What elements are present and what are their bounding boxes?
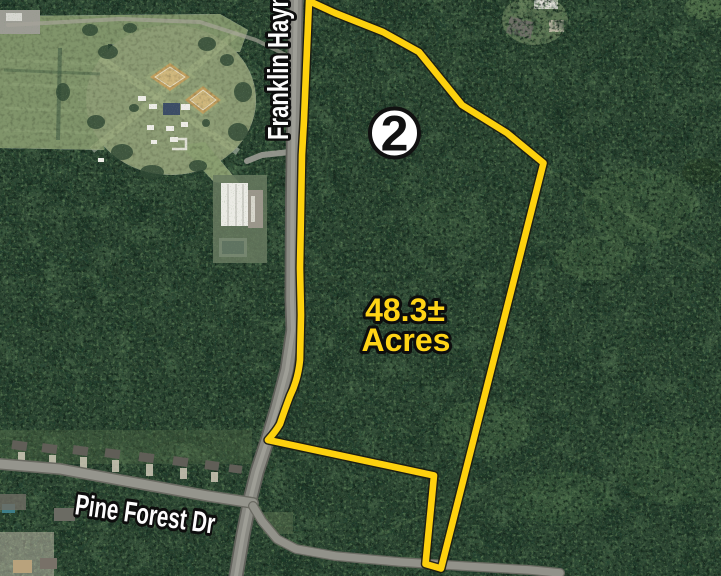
svg-text:Acres: Acres [362,322,451,358]
svg-text:2: 2 [381,106,409,162]
svg-text:Franklin Hayn: Franklin Hayn [263,0,295,140]
